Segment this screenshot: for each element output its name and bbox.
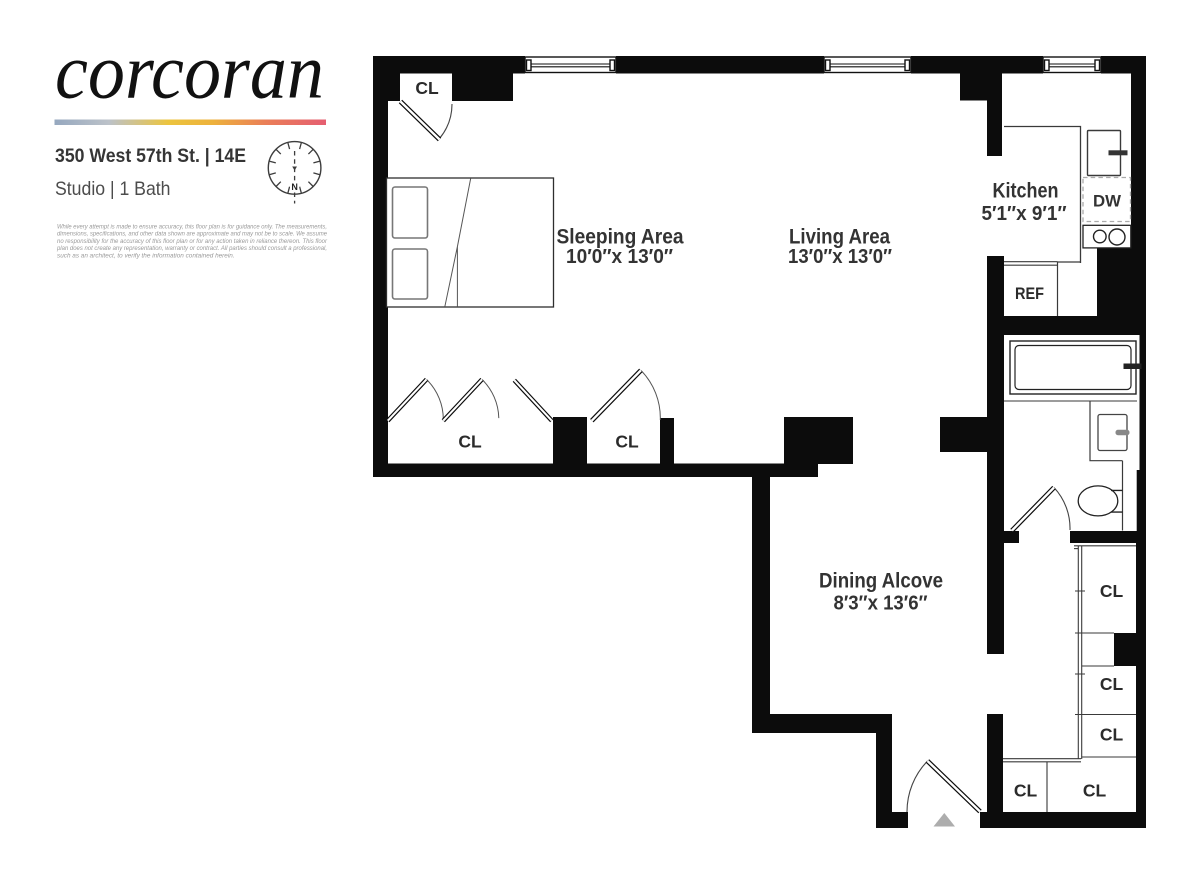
svg-text:plan does not create any repre: plan does not create any representation,… — [56, 245, 327, 252]
svg-text:CL: CL — [1014, 781, 1038, 801]
svg-text:such as an architect, to verif: such as an architect, to verify the info… — [57, 252, 235, 259]
svg-text:13′0″x 13′0″: 13′0″x 13′0″ — [788, 246, 892, 268]
svg-text:10′0″x 13′0″: 10′0″x 13′0″ — [566, 246, 673, 268]
svg-text:CL: CL — [1100, 725, 1124, 745]
svg-text:While every attempt is made to: While every attempt is made to ensure ac… — [57, 224, 327, 231]
svg-text:350 West 57th St. | 14E: 350 West 57th St. | 14E — [55, 145, 246, 167]
svg-text:dimensions, specifications, an: dimensions, specifications, and other da… — [57, 231, 327, 238]
svg-text:CL: CL — [458, 432, 482, 452]
svg-text:CL: CL — [1083, 781, 1107, 801]
svg-text:CL: CL — [1100, 674, 1124, 694]
svg-text:CL: CL — [415, 78, 439, 98]
svg-text:corcoran: corcoran — [55, 28, 324, 115]
svg-text:N: N — [291, 182, 298, 192]
svg-text:CL: CL — [615, 432, 639, 452]
svg-text:no responsibility for the accu: no responsibility for the accuracy of th… — [57, 238, 328, 245]
svg-text:DW: DW — [1093, 193, 1121, 211]
svg-text:REF: REF — [1015, 284, 1044, 303]
svg-text:Living Area: Living Area — [789, 225, 891, 249]
svg-text:Studio | 1 Bath: Studio | 1 Bath — [55, 178, 171, 200]
svg-text:Dining Alcove: Dining Alcove — [819, 569, 943, 593]
svg-text:8′3″x 13′6″: 8′3″x 13′6″ — [834, 593, 928, 615]
svg-text:5′1″x 9′1″: 5′1″x 9′1″ — [982, 203, 1067, 225]
svg-text:Sleeping Area: Sleeping Area — [557, 225, 685, 249]
svg-text:CL: CL — [1100, 581, 1124, 601]
svg-text:Kitchen: Kitchen — [993, 179, 1059, 203]
